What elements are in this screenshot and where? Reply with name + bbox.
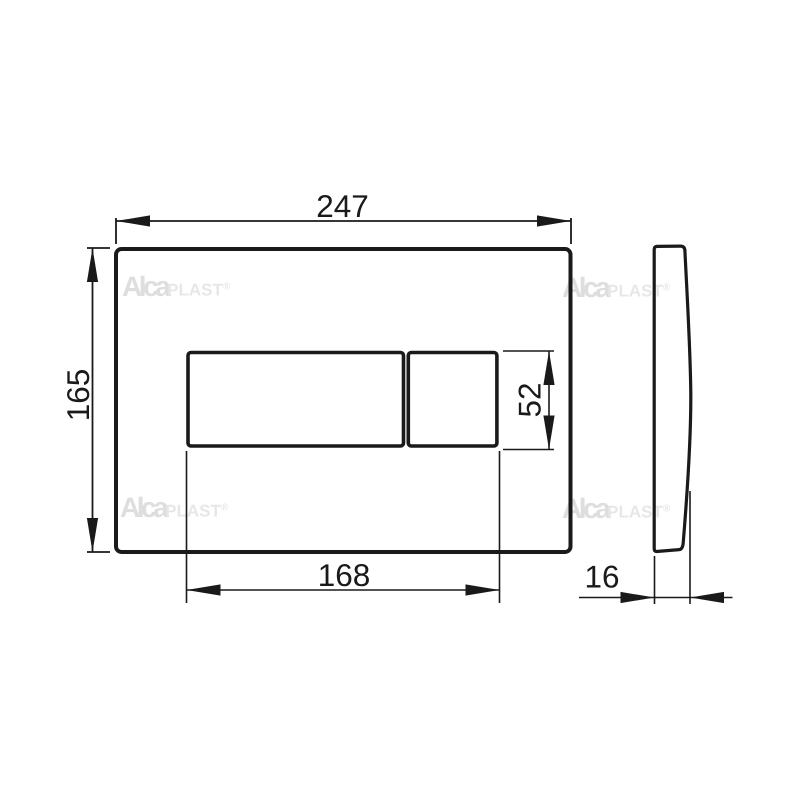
svg-text:AlcaPLAST®: AlcaPLAST® (120, 492, 229, 523)
svg-text:AlcaPLAST®: AlcaPLAST® (122, 271, 231, 302)
